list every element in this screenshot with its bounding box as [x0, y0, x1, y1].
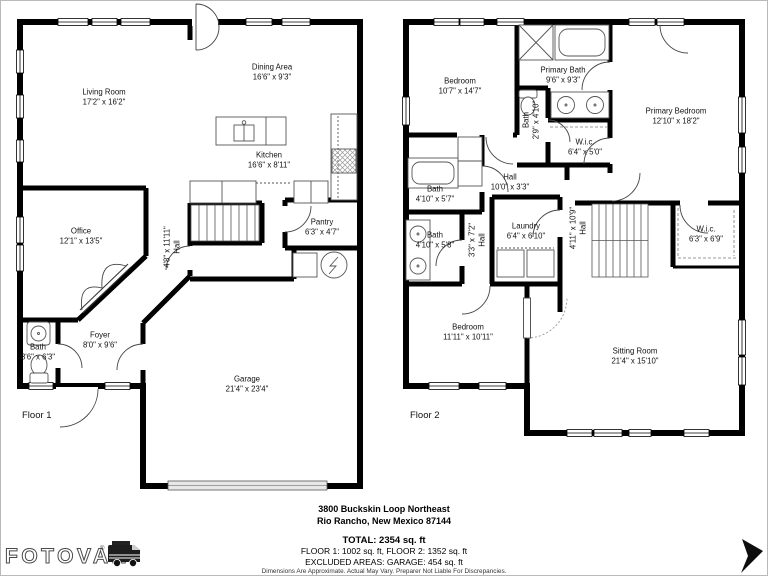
shower-icon [519, 25, 553, 60]
room-label-sitting-room: Sitting Room 21'4" x 15'10" [611, 346, 658, 365]
room-label-kitchen: Kitchen 16'6" x 8'11" [248, 150, 290, 169]
floor-areas: FLOOR 1: 1002 sq. ft, FLOOR 2: 1352 sq. … [0, 546, 768, 557]
excluded-areas: EXCLUDED AREAS: GARAGE: 454 sq. ft [0, 557, 768, 568]
room-label-bath-small: Bath 2'9" x 4'10" [521, 101, 540, 139]
bathtub-icon [555, 25, 609, 60]
floor-plan-page: FOTOVAN ® Living Room 17'2" x 16'2" Dini… [0, 0, 768, 576]
bedroom1-closet-icon [458, 137, 482, 186]
room-label-bedroom2: Bedroom 11'11" x 10'11" [443, 322, 493, 341]
room-label-living-room: Living Room 17'2" x 16'2" [82, 87, 125, 106]
room-label-dining-area: Dining Area 16'6" x 9'3" [252, 62, 292, 81]
total-area: TOTAL: 2354 sq. ft [0, 535, 768, 546]
double-vanity-icon [551, 92, 609, 118]
room-label-pantry: Pantry 6'3" x 4'7" [305, 217, 339, 236]
stove-icon [332, 149, 356, 173]
disclaimer-text: Dimensions Are Approximate. Actual May V… [0, 568, 768, 575]
room-label-bath57: Bath 4'10" x 5'7" [416, 184, 454, 203]
sitting-room-door [524, 298, 531, 338]
room-label-garage: Garage 21'4" x 23'4" [226, 374, 269, 393]
room-label-bath-floor1: Bath 3'6" x 6'3" [21, 342, 55, 361]
address-line1: 3800 Buckskin Loop Northeast [0, 504, 768, 516]
room-label-wic2: W.i.c. 6'3" x 6'9" [689, 224, 723, 243]
room-label-wic1: W.i.c. 6'4" x 5'0" [568, 137, 602, 156]
room-label-primary-bedroom: Primary Bedroom 12'10" x 18'2" [646, 106, 707, 125]
floor1-plan [17, 4, 361, 490]
room-label-laundry: Laundry 6'4" x 6'10" [507, 221, 545, 240]
room-label-hall-mid: 3'3" x 7'2" Hall [467, 223, 486, 257]
room-label-hall-floor1: 4'8" x 11'11" Hall [162, 226, 181, 268]
address-line2: Rio Rancho, New Mexico 87144 [0, 516, 768, 528]
floor2-tag: Floor 2 [410, 410, 440, 421]
floor1-stairs-icon [191, 205, 259, 241]
floor2-stairs-icon [592, 204, 648, 277]
room-label-hall-stairs: 4'11" x 10'9" Hall [568, 207, 587, 249]
area-summary: TOTAL: 2354 sq. ft FLOOR 1: 1002 sq. ft,… [0, 535, 768, 568]
kitchen-island-icon [216, 117, 286, 145]
room-label-hall-upper: Hall 10'0" x 3'3" [491, 172, 529, 191]
floor1-tag: Floor 1 [22, 410, 52, 421]
room-label-office: Office 12'1" x 13'5" [60, 226, 103, 245]
property-address: 3800 Buckskin Loop Northeast Rio Rancho,… [0, 504, 768, 527]
room-label-primary-bath: Primary Bath 9'6" x 9'3" [540, 65, 585, 84]
room-label-foyer: Foyer 8'0" x 9'6" [83, 330, 117, 349]
room-label-bedroom1: Bedroom 10'7" x 14'7" [439, 76, 482, 95]
bath-sinks-icon [406, 220, 430, 280]
room-label-bath58: Bath 4'10" x 5'8" [416, 230, 454, 249]
